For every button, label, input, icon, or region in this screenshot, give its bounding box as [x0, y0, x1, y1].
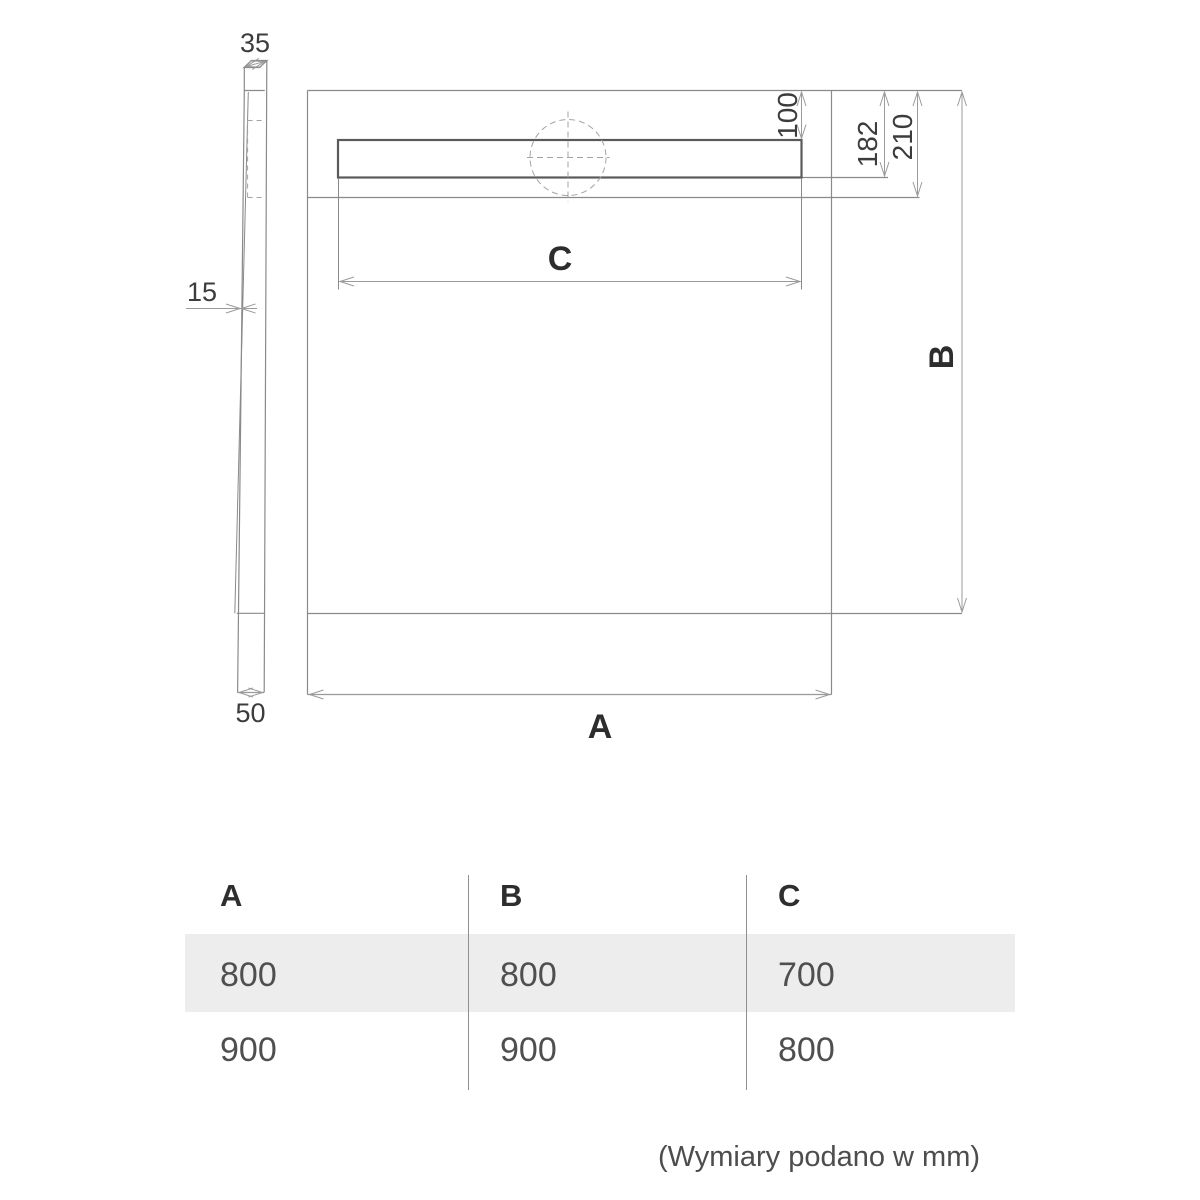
units-caption: (Wymiary podano w mm): [658, 1141, 980, 1173]
table-cell: 700: [778, 958, 835, 992]
dim-210-label: 210: [887, 114, 918, 161]
side-wall-thickness-label: 15: [187, 277, 217, 307]
top-view-dimensions: [310, 92, 963, 695]
table-header-c: C: [778, 880, 800, 911]
side-hidden-channel: [248, 121, 262, 198]
drain-circle: [527, 112, 610, 203]
table-cell: 800: [220, 958, 277, 992]
technical-drawing: 35 15 50 A C B 100 182 210: [0, 0, 1200, 840]
table-cell: 900: [500, 1033, 557, 1067]
side-right-edge: [264, 61, 267, 693]
dim-c-label: C: [548, 240, 573, 278]
side-base-height-label: 50: [235, 698, 265, 728]
table-separator-2: [746, 875, 747, 1090]
side-top-thickness-label: 35: [240, 28, 270, 58]
table-cell: 800: [500, 958, 557, 992]
table-header-a: A: [220, 880, 242, 911]
top-view: [308, 91, 963, 695]
drain-channel: [338, 140, 802, 178]
table-header-b: B: [500, 880, 522, 911]
dim-b-label: B: [923, 345, 961, 370]
dim-a-label: A: [588, 708, 613, 746]
table-row-shaded-background: [185, 934, 1015, 1012]
side-inner-slope: [235, 92, 249, 613]
dim-100-label: 100: [772, 92, 803, 139]
table-cell: 900: [220, 1033, 277, 1067]
dim-182-label: 182: [852, 121, 883, 168]
table-cell: 800: [778, 1033, 835, 1067]
table-separator-1: [468, 875, 469, 1090]
side-view-dimensions: [186, 62, 265, 693]
side-view: [235, 61, 267, 693]
